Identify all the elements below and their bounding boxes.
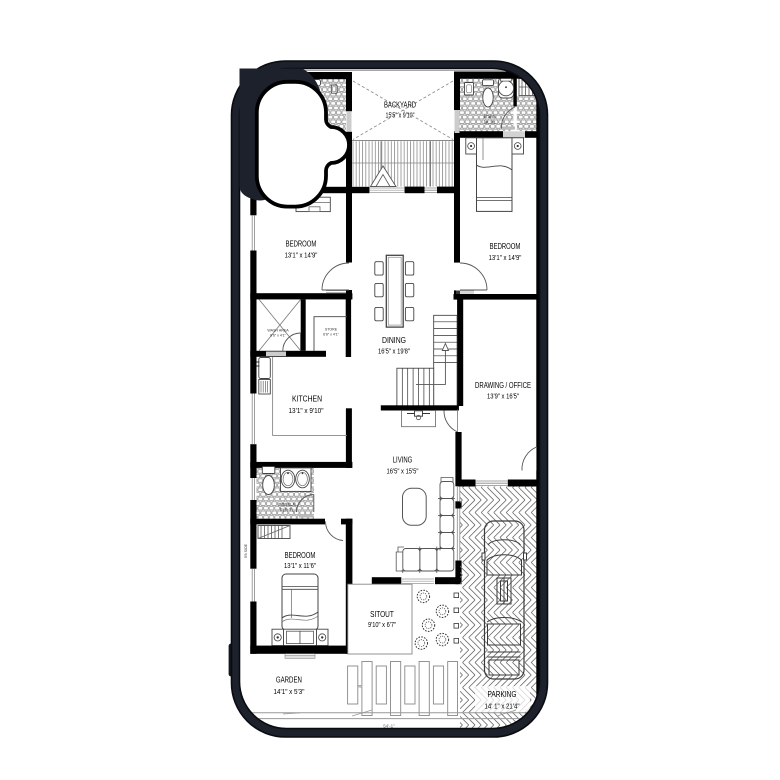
svg-text:6'6" x 4'1": 6'6" x 4'1" [323, 333, 339, 337]
svg-text:13'9" x 16'5": 13'9" x 16'5" [487, 392, 519, 401]
svg-text:16'5" x 15'5": 16'5" x 15'5" [387, 467, 419, 476]
svg-text:15'5" x 9'10": 15'5" x 9'10" [386, 111, 415, 120]
svg-text:bl'alvlc: bl'alvlc [484, 114, 496, 119]
svg-text:13'1" x 14'9": 13'1" x 14'9" [489, 253, 522, 262]
svg-text:9'10" x 6'7": 9'10" x 6'7" [368, 620, 396, 629]
svg-text:BEDROOM: BEDROOM [285, 551, 316, 560]
svg-text:GARDEN: GARDEN [276, 676, 302, 685]
svg-text:BACKYARD: BACKYARD [384, 101, 416, 110]
svg-text:LIVING: LIVING [393, 456, 413, 465]
svg-text:PORSLN: PORSLN [278, 502, 295, 507]
svg-text:13'1" x 14'9": 13'1" x 14'9" [285, 250, 318, 259]
svg-text:lat..lct.: lat..lct. [484, 120, 496, 125]
svg-text:14'1" x 5'3": 14'1" x 5'3" [274, 687, 305, 696]
svg-text:14' 1" x 21'4": 14' 1" x 21'4" [485, 702, 520, 711]
svg-text:5'6 SIDE: 5'6 SIDE [244, 543, 248, 558]
svg-text:13'1" x 9'10": 13'1" x 9'10" [289, 406, 324, 415]
svg-text:BEDROOM: BEDROOM [286, 240, 317, 249]
svg-text:KITCHEN: KITCHEN [292, 395, 322, 404]
svg-text:WASH AREA: WASH AREA [267, 329, 289, 333]
svg-text:BEDROOM: BEDROOM [490, 242, 521, 251]
svg-text:13'1" x 11'6": 13'1" x 11'6" [284, 561, 316, 570]
svg-text:FLR TL: FLR TL [280, 508, 295, 513]
svg-text:6'6" x 4'1": 6'6" x 4'1" [270, 334, 286, 338]
svg-text:PARKING: PARKING [488, 690, 517, 699]
svg-text:DRAWING / OFFICE: DRAWING / OFFICE [475, 381, 531, 390]
svg-text:STORE: STORE [325, 328, 338, 332]
svg-text:DINING: DINING [382, 336, 406, 345]
svg-text:SITOUT: SITOUT [370, 610, 394, 619]
svg-text:16'5" x 19'8": 16'5" x 19'8" [378, 347, 410, 356]
